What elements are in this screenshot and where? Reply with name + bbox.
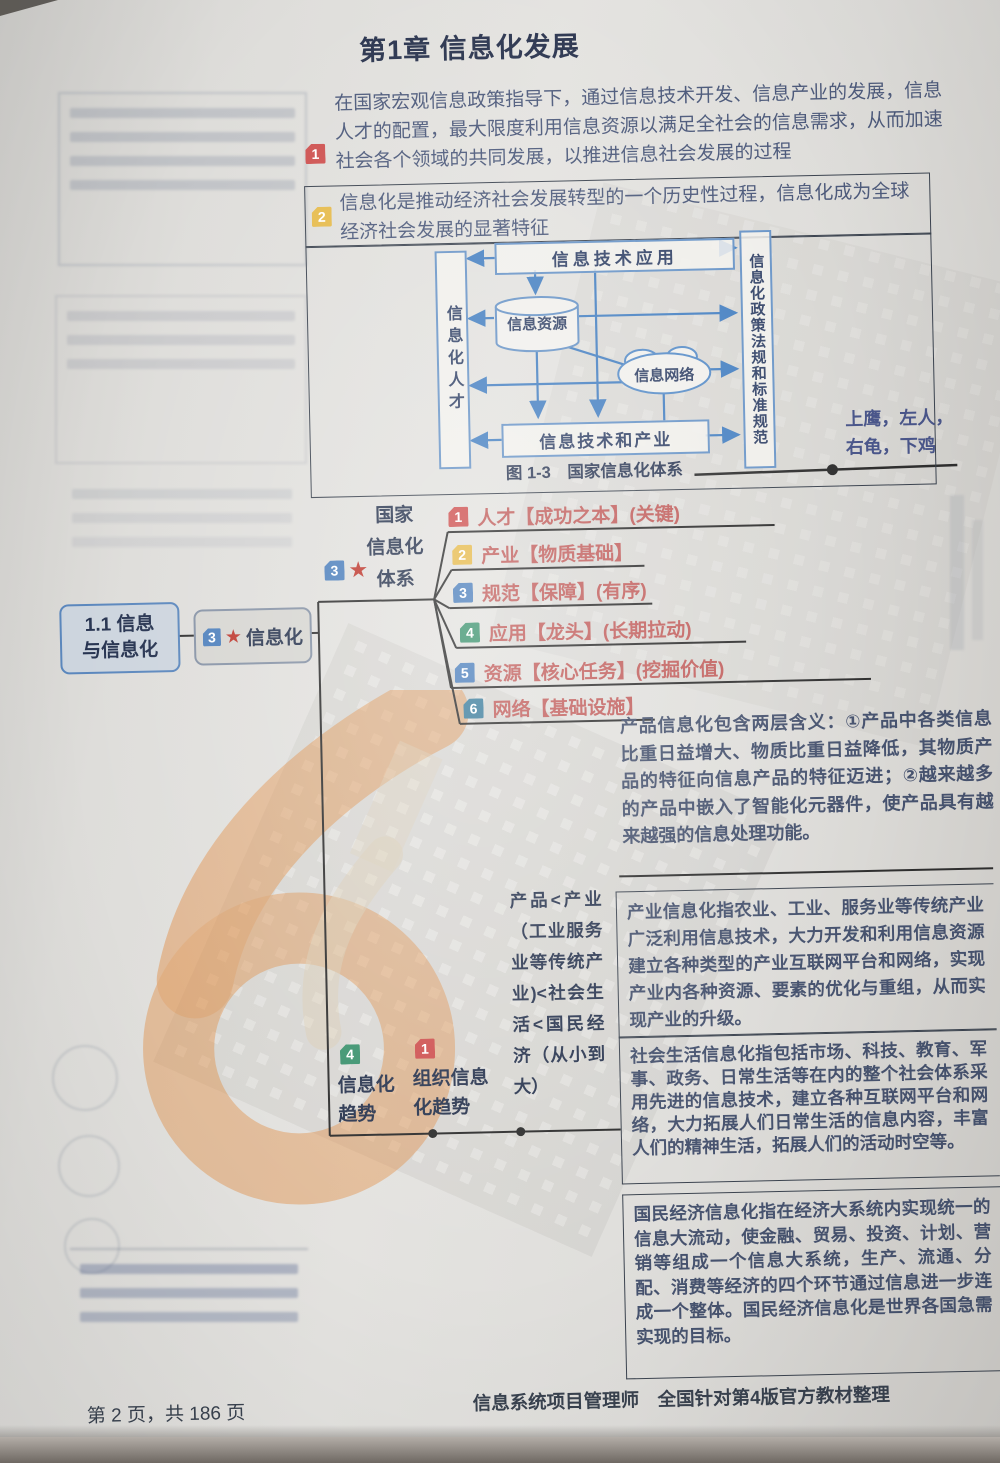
detail-social: 社会生活信息化指包括市场、科技、教育、军事、政务、日常生活等在内的整个社会体系采… bbox=[630, 1037, 989, 1160]
page-edge-shadow bbox=[0, 1425, 1000, 1437]
node-badge: 3 bbox=[203, 628, 221, 646]
diagram-cloud-label: 信息网络 bbox=[626, 364, 702, 387]
org-trend-label: 组织信息化趋势 bbox=[412, 1063, 493, 1123]
branch-text: 人才【成功之本】(关键) bbox=[477, 499, 680, 530]
detail-industry: 产业信息化指农业、工业、服务业等传统产业广泛利用信息技术，大力开发和利用信息资源… bbox=[627, 891, 987, 1034]
diagram-left-box: 信息化人才 bbox=[435, 251, 472, 470]
node-label: 信息化 bbox=[246, 622, 304, 650]
footer-page-number: 第 2 页，共 186 页 bbox=[87, 1398, 246, 1428]
system-label-line: 信息化 bbox=[354, 531, 437, 565]
detail-social-box: 社会生活信息化指包括市场、科技、教育、军事、政务、日常生活等在内的整个社会体系采… bbox=[619, 1029, 1000, 1184]
branch-text: 产业【物质基础】 bbox=[481, 538, 634, 568]
branch-text: 规范【保障】(有序) bbox=[482, 575, 647, 606]
intro-text: 在国家宏观信息政策指导下，通过信息技术开发、信息产业的发展，信息人才的配置，最大… bbox=[334, 76, 950, 176]
star-icon: ★ bbox=[225, 627, 242, 646]
branch-row: 4 应用【龙头】(长期拉动) bbox=[460, 613, 692, 648]
branch-row: 6 网络【基础设施】 bbox=[463, 690, 645, 724]
diagram-cylinder-label: 信息资源 bbox=[500, 312, 574, 335]
detail-product: 产品信息化包含两层含义：①产品中各类信息比重日益增大、物质比重日益降低，其物质产… bbox=[620, 705, 995, 851]
detail-economy-box: 国民经济信息化指在经济大系统内实现统一的信息大流动，使金融、贸易、投资、计划、营… bbox=[622, 1186, 1000, 1379]
branch-badge: 1 bbox=[448, 507, 468, 527]
branch-row: 5 资源【核心任务】(挖掘价值) bbox=[454, 652, 724, 688]
diagram-right-box: 信息化政策法规和标准规范 bbox=[739, 230, 776, 469]
branch-badge: 6 bbox=[463, 698, 483, 718]
page-title: 第1章 信息化发展 bbox=[359, 24, 580, 68]
branch-badge: 3 bbox=[453, 583, 473, 603]
branch-text: 资源【核心任务】(挖掘价值) bbox=[483, 654, 724, 686]
informatization-node: 3 ★ 信息化 bbox=[193, 607, 312, 666]
detail-industry-box: 产业信息化指农业、工业、服务业等传统产业广泛利用信息技术，大力开发和利用信息资源… bbox=[616, 883, 997, 1037]
branch-badge: 4 bbox=[460, 622, 480, 642]
system-label: 国家 信息化 体系 bbox=[353, 499, 437, 597]
detail-economy: 国民经济信息化指在经济大系统内实现统一的信息大流动，使金融、贸易、投资、计划、营… bbox=[633, 1194, 993, 1349]
desk-surface bbox=[0, 1437, 1000, 1463]
diagram-top-box: 信息技术应用 bbox=[494, 238, 735, 275]
root-label: 1.1 信息与信息化 bbox=[76, 611, 163, 665]
system-label-line: 国家 bbox=[353, 499, 436, 533]
branch-text: 应用【龙头】(长期拉动) bbox=[489, 614, 692, 645]
trend-label: 信息化趋势 bbox=[337, 1070, 400, 1129]
branch-badge: 2 bbox=[452, 545, 472, 565]
branch-row: 1 人才【成功之本】(关键) bbox=[448, 497, 680, 532]
root-node: 1.1 信息与信息化 bbox=[59, 602, 180, 675]
branch-row: 2 产业【物质基础】 bbox=[452, 536, 634, 570]
branch-badge: 5 bbox=[455, 663, 475, 683]
mnemonic-note: 上鹰，左人，右龟，下鸡 bbox=[845, 403, 958, 461]
branch-row: 3 规范【保障】(有序) bbox=[453, 574, 647, 608]
system-label-line: 体系 bbox=[354, 563, 437, 597]
order-note: 产品<产业（工业服务业等传统产业)<社会生活<国民经济（从小到大） bbox=[509, 884, 606, 1103]
notes-page: 第1章 信息化发展 1 在国家宏观信息政策指导下，通过信息技术开发、信息产业的发… bbox=[0, 0, 1000, 1463]
diagram-bottom-box: 信息技术和产业 bbox=[501, 419, 710, 458]
